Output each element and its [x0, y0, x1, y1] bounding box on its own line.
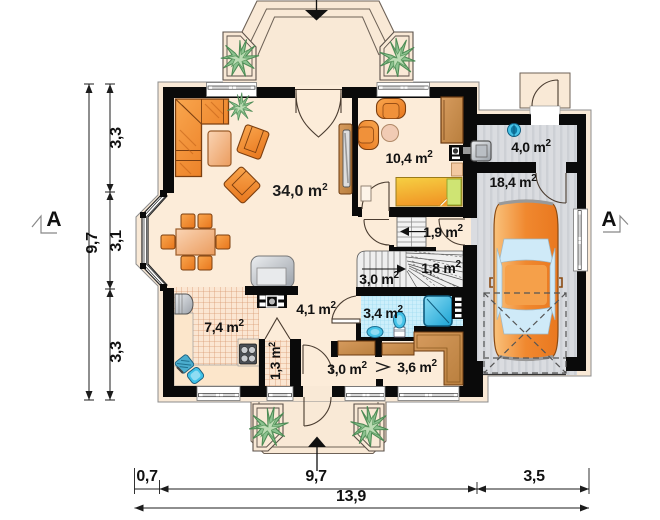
svg-text:3,6 m2: 3,6 m2 — [397, 358, 437, 375]
svg-text:9,7: 9,7 — [305, 468, 327, 485]
svg-text:A: A — [46, 208, 61, 231]
svg-text:13,9: 13,9 — [336, 488, 366, 505]
svg-text:34,0 m2: 34,0 m2 — [272, 182, 328, 200]
svg-text:A: A — [601, 208, 616, 231]
svg-text:18,4 m2: 18,4 m2 — [489, 173, 537, 190]
svg-text:4,1 m2: 4,1 m2 — [296, 300, 336, 317]
svg-text:3,1: 3,1 — [108, 230, 125, 252]
svg-text:9,7: 9,7 — [84, 232, 101, 254]
svg-text:10,4 m2: 10,4 m2 — [385, 149, 433, 166]
svg-text:3,5: 3,5 — [523, 468, 545, 485]
svg-text:1,8 m2: 1,8 m2 — [421, 259, 461, 276]
svg-text:0,7: 0,7 — [136, 468, 158, 485]
svg-text:1,3 m2: 1,3 m2 — [267, 342, 283, 380]
svg-text:3,0 m2: 3,0 m2 — [359, 270, 399, 287]
svg-text:3,4 m2: 3,4 m2 — [363, 304, 403, 321]
svg-text:4,0 m2: 4,0 m2 — [511, 138, 551, 155]
svg-text:3,0 m2: 3,0 m2 — [327, 360, 367, 377]
svg-text:3,3: 3,3 — [108, 127, 125, 149]
svg-text:7,4 m2: 7,4 m2 — [204, 318, 244, 335]
svg-text:1,9 m2: 1,9 m2 — [423, 223, 463, 240]
svg-text:3,3: 3,3 — [108, 341, 125, 363]
